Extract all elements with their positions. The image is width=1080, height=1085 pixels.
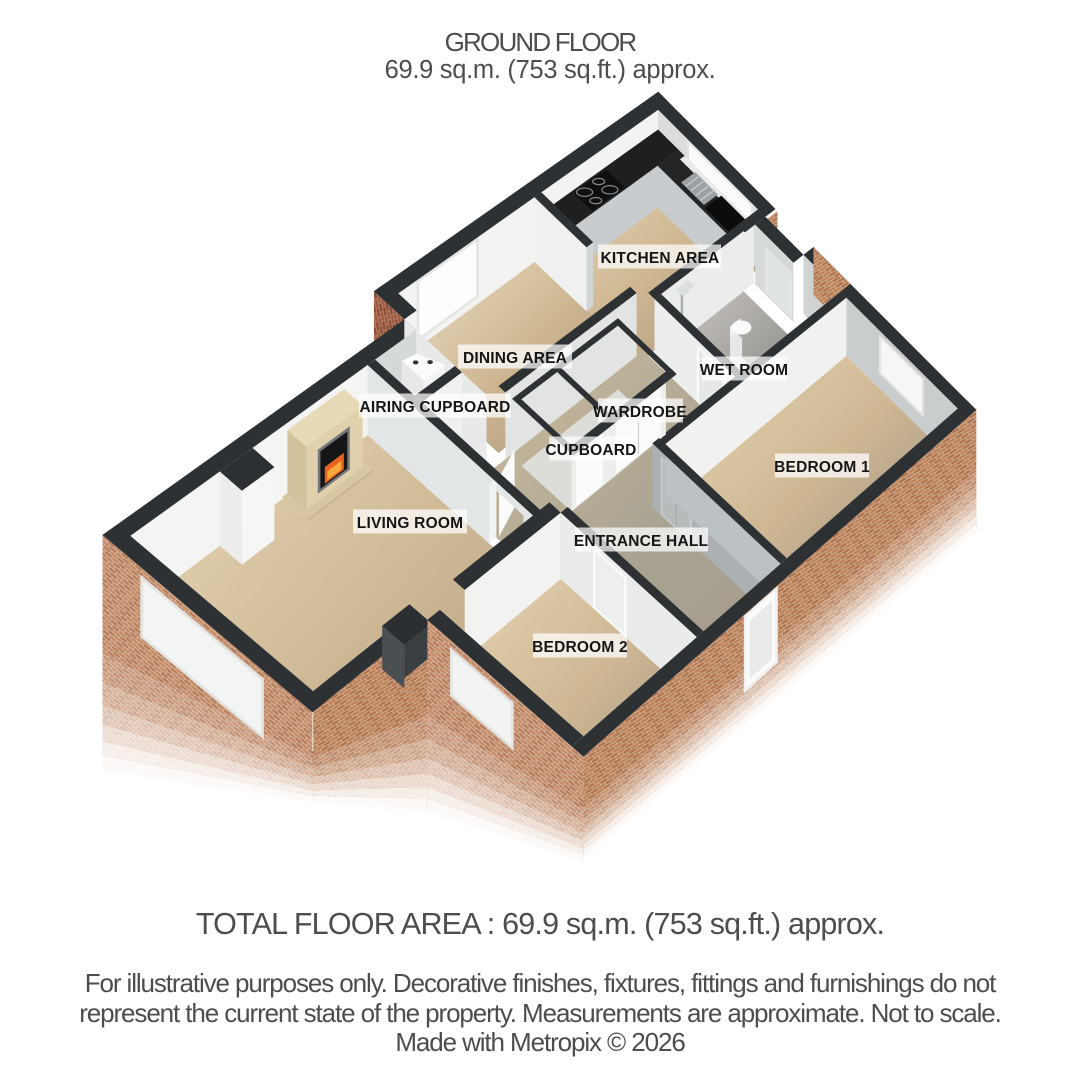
svg-text:CUPBOARD: CUPBOARD <box>545 442 636 459</box>
svg-text:TOTAL FLOOR AREA : 69.9 sq.m.: TOTAL FLOOR AREA : 69.9 sq.m. (753 sq.ft… <box>196 907 884 941</box>
svg-text:GROUND FLOOR: GROUND FLOOR <box>445 27 637 57</box>
svg-text:DINING AREA: DINING AREA <box>463 350 567 367</box>
svg-text:For illustrative purposes only: For illustrative purposes only. Decorati… <box>85 968 997 998</box>
svg-text:WET ROOM: WET ROOM <box>700 362 789 379</box>
svg-text:KITCHEN AREA: KITCHEN AREA <box>601 250 720 267</box>
svg-text:WARDROBE: WARDROBE <box>593 404 687 421</box>
svg-text:BEDROOM 1: BEDROOM 1 <box>774 459 870 476</box>
svg-text:69.9 sq.m. (753 sq.ft.) approx: 69.9 sq.m. (753 sq.ft.) approx. <box>385 56 716 84</box>
svg-text:BEDROOM 2: BEDROOM 2 <box>532 639 628 656</box>
svg-text:represent the current state of: represent the current state of the prope… <box>79 998 1001 1028</box>
svg-text:LIVING ROOM: LIVING ROOM <box>357 515 463 532</box>
svg-text:AIRING CUPBOARD: AIRING CUPBOARD <box>359 399 510 416</box>
svg-text:Made with Metropix © 2026: Made with Metropix © 2026 <box>395 1027 685 1057</box>
svg-text:ENTRANCE HALL: ENTRANCE HALL <box>574 533 708 550</box>
